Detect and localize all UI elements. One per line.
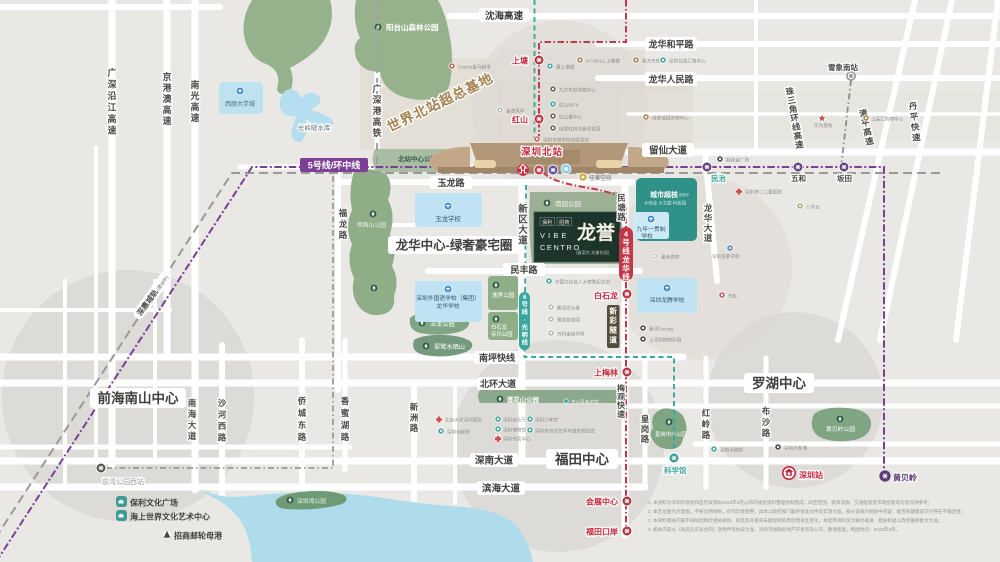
svg-text:沈海高速: 沈海高速: [485, 10, 524, 22]
svg-text:壹河Cocoity: 壹河Cocoity: [649, 326, 674, 332]
svg-text:民丰路: 民丰路: [510, 264, 538, 275]
svg-text:保利: 保利: [542, 218, 552, 226]
svg-text:2. 本区位图为示意图，不按比例绘制，仅作示意使用，具体以政: 2. 本区位图为示意图，不按比例绘制，仅作示意使用，具体以政府部门最终批准文件及…: [648, 508, 966, 515]
svg-text:南海大道: 南海大道: [188, 398, 197, 441]
svg-text:深圳第二儿童医院: 深圳第二儿童医院: [745, 189, 782, 196]
svg-text:八号仓: 八号仓: [806, 204, 820, 211]
svg-text:深圳北站: 深圳北站: [521, 146, 563, 158]
svg-text:皇岗路: 皇岗路: [641, 414, 650, 444]
svg-text:KT MALL 上塘荟: KT MALL 上塘荟: [586, 58, 620, 65]
svg-text:福龙路: 福龙路: [338, 208, 348, 240]
svg-text:绿景红树湾壹号花园: 绿景红树湾壹号花园: [559, 126, 601, 133]
svg-text:玉龙学校: 玉龙学校: [435, 214, 461, 223]
svg-text:白石龙: 白石龙: [491, 323, 508, 331]
svg-text:深圳龙腾学校: 深圳龙腾学校: [650, 296, 685, 304]
svg-text:绿景佳园购物中心: 绿景佳园购物中心: [652, 115, 689, 122]
svg-text:玉龙路: 玉龙路: [437, 177, 465, 188]
svg-text:北环大道: 北环大道: [480, 378, 516, 389]
svg-text:红岭路: 红岭路: [702, 408, 711, 440]
svg-text:深圳万象城: 深圳万象城: [784, 445, 807, 452]
svg-text:民塘路: 民塘路: [617, 193, 626, 222]
svg-text:黄贝岭公园: 黄贝岭公园: [826, 425, 855, 433]
svg-text:大商业 大文娱 科技园: 大商业 大文娱 科技园: [644, 200, 687, 207]
svg-text:深圳音乐厅: 深圳音乐厅: [503, 417, 526, 424]
svg-text:龙誉: 龙誉: [577, 221, 616, 244]
svg-text:海上世界文化艺术中心: 海上世界文化艺术中心: [130, 512, 210, 522]
svg-text:民治: 民治: [711, 173, 726, 183]
svg-text:新洲路: 新洲路: [410, 402, 419, 433]
svg-text:雅颂居花园: 雅颂居花园: [557, 317, 580, 324]
svg-text:罗湖中心: 罗湖中心: [752, 375, 806, 391]
svg-text:上塘: 上塘: [512, 56, 528, 66]
svg-text:Costco盒马超市: Costco盒马超市: [458, 64, 491, 71]
svg-text:4. 相关内容以《商品房买卖合同》及附件等协议为准。深圳市福: 4. 相关内容以《商品房买卖合同》及附件等协议为准。深圳市福朗房地产开发有限公司…: [648, 526, 900, 533]
svg-text:深圳站: 深圳站: [799, 470, 823, 480]
svg-text:5号线/环中线: 5号线/环中线: [308, 160, 361, 171]
svg-text:深圳博物馆: 深圳博物馆: [503, 427, 526, 434]
svg-text:规划中: 规划中: [679, 192, 690, 197]
svg-text:(备案名:龙誉花园): (备案名:龙誉花园): [576, 249, 610, 256]
svg-text:留仙大道: 留仙大道: [649, 145, 688, 157]
svg-text:翻身金广场: 翻身金广场: [726, 157, 749, 164]
svg-text:城市超核: 城市超核: [650, 190, 678, 199]
svg-text:梅观快速: 梅观快速: [617, 383, 626, 419]
svg-text:九年一贯制: 九年一贯制: [637, 225, 666, 233]
svg-text:置上潮城: 置上潮城: [556, 64, 575, 71]
svg-text:4号线龙华线: 4号线龙华线: [622, 230, 630, 282]
svg-text:翠鹭水栖山: 翠鹭水栖山: [434, 343, 465, 351]
svg-text:VIBE: VIBE: [540, 231, 570, 240]
svg-text:福田口岸: 福田口岸: [585, 527, 618, 537]
svg-text:新彩隧道: 新彩隧道: [608, 306, 617, 345]
svg-text:龙华中心-绿奢豪宅圈: 龙华中心-绿奢豪宅圈: [395, 238, 513, 253]
svg-text:前海南山中心: 前海南山中心: [98, 390, 179, 406]
svg-text:坂田: 坂田: [837, 173, 852, 183]
svg-text:五和: 五和: [791, 173, 806, 183]
svg-text:深圳大剧院: 深圳大剧院: [720, 447, 743, 454]
svg-text:万科金域华府: 万科金域华府: [557, 331, 585, 338]
svg-text:皇岗中心公园: 皇岗中心公园: [655, 430, 687, 438]
svg-text:深圳北站汇隆中心: 深圳北站汇隆中心: [669, 58, 706, 65]
svg-text:西丽大学城: 西丽大学城: [225, 100, 255, 108]
svg-text:龙华大道: 龙华大道: [703, 203, 713, 243]
svg-text:壹方天地: 壹方天地: [642, 58, 661, 65]
svg-text:科学馆: 科学馆: [664, 465, 687, 475]
svg-text:沙河西路: 沙河西路: [218, 398, 227, 443]
svg-text:深圳少年宫: 深圳少年宫: [535, 417, 558, 424]
svg-text:天虹: 天虹: [728, 293, 738, 300]
svg-text:上河坊购物乐园: 上河坊购物乐园: [649, 337, 682, 344]
svg-text:3. 本资料相关内容不排除因政府相关规划、规定及开发商未能控: 3. 本资料相关内容不排除因政府相关规划、规定及开发商未能控制的原因而发生变化，…: [648, 517, 943, 524]
svg-text:深南大道: 深南大道: [475, 455, 514, 467]
svg-text:会展中心: 会展中心: [586, 497, 618, 507]
svg-text:京港澳高速: 京港澳高速: [162, 71, 172, 126]
svg-text:®: ®: [612, 222, 615, 227]
svg-text:中国文化名人大营救纪念馆: 中国文化名人大营救纪念馆: [555, 279, 611, 286]
svg-text:招商: 招商: [559, 218, 569, 226]
svg-text:广深港高铁: 广深港高铁: [372, 83, 382, 138]
svg-text:佳果空间: 佳果空间: [589, 174, 612, 182]
svg-text:深圳宣菊学校: 深圳宣菊学校: [712, 253, 740, 260]
svg-text:莲花山公园: 莲花山公园: [507, 395, 540, 404]
svg-text:保利文化广场: 保利文化广场: [129, 498, 178, 508]
svg-text:1. 本资料为深圳市规划和自然资源局2023年4月公布的规划: 1. 本资料为深圳市规划和自然资源局2023年4月公布的规划资料整理绘制而成，四…: [648, 499, 932, 506]
svg-text:龙华和平路: 龙华和平路: [647, 39, 694, 50]
svg-text:红山6979: 红山6979: [559, 102, 579, 109]
svg-text:新区大道: 新区大道: [518, 203, 528, 247]
svg-text:滨海大道: 滨海大道: [482, 483, 521, 495]
svg-text:上品汇购物中心: 上品汇购物中心: [871, 116, 904, 123]
svg-text:黄贝岭: 黄贝岭: [893, 473, 917, 483]
svg-text:龙华人民路: 龙华人民路: [647, 74, 694, 85]
svg-text:红山睿中心: 红山睿中心: [559, 114, 582, 121]
svg-text:前湾公园西站: 前湾公园西站: [102, 477, 144, 486]
svg-text:福田中心: 福田中心: [554, 451, 609, 467]
svg-text:华为基地: 华为基地: [814, 122, 833, 129]
svg-text:金茂风华: 金茂风华: [506, 108, 525, 115]
svg-text:深圳市城市规划展览馆: 深圳市城市规划展览馆: [543, 137, 589, 144]
svg-text:熊茜山公园: 熊茜山公园: [357, 221, 386, 229]
svg-text:南坪快线: 南坪快线: [479, 352, 515, 363]
svg-text:白石龙: 白石龙: [594, 291, 618, 301]
svg-text:阳台山森林公园: 阳台山森林公园: [386, 22, 439, 32]
svg-text:深圳创新馆: 深圳创新馆: [447, 429, 470, 436]
svg-text:南园公园: 南园公园: [555, 199, 581, 208]
svg-text:金色悦府: 金色悦府: [661, 254, 680, 261]
svg-text:CENTRO: CENTRO: [540, 243, 581, 252]
svg-text:学校: 学校: [641, 232, 653, 240]
svg-text:上梅林: 上梅林: [594, 368, 618, 378]
svg-text:亲乐公园: 亲乐公园: [491, 330, 513, 338]
svg-text:雪象南站: 雪象南站: [828, 62, 858, 72]
svg-text:深圳湾公园: 深圳湾公园: [297, 497, 326, 505]
svg-text:深圳外国语学校（集团）: 深圳外国语学校（集团）: [416, 294, 480, 302]
svg-text:招商邮轮母港: 招商邮轮母港: [174, 531, 223, 541]
svg-text:布沙路: 布沙路: [761, 406, 771, 438]
svg-text:鹏润达大厦: 鹏润达大厦: [557, 305, 580, 312]
svg-text:关山月美术馆: 关山月美术馆: [571, 399, 599, 406]
svg-text:深圳市民中心: 深圳市民中心: [503, 436, 531, 443]
svg-text:北京大学深圳医院: 北京大学深圳医院: [445, 417, 482, 424]
svg-text:长岭陂水库: 长岭陂水库: [298, 123, 331, 132]
svg-text:红山: 红山: [512, 115, 528, 125]
svg-text:深圳市当代艺术与城市规划馆: 深圳市当代艺术与城市规划馆: [535, 428, 595, 435]
svg-text:龙华学校: 龙华学校: [436, 302, 459, 310]
svg-text:九方天虹购物中心: 九方天虹购物中心: [559, 87, 596, 94]
svg-text:逸秀公园: 逸秀公园: [492, 291, 515, 299]
